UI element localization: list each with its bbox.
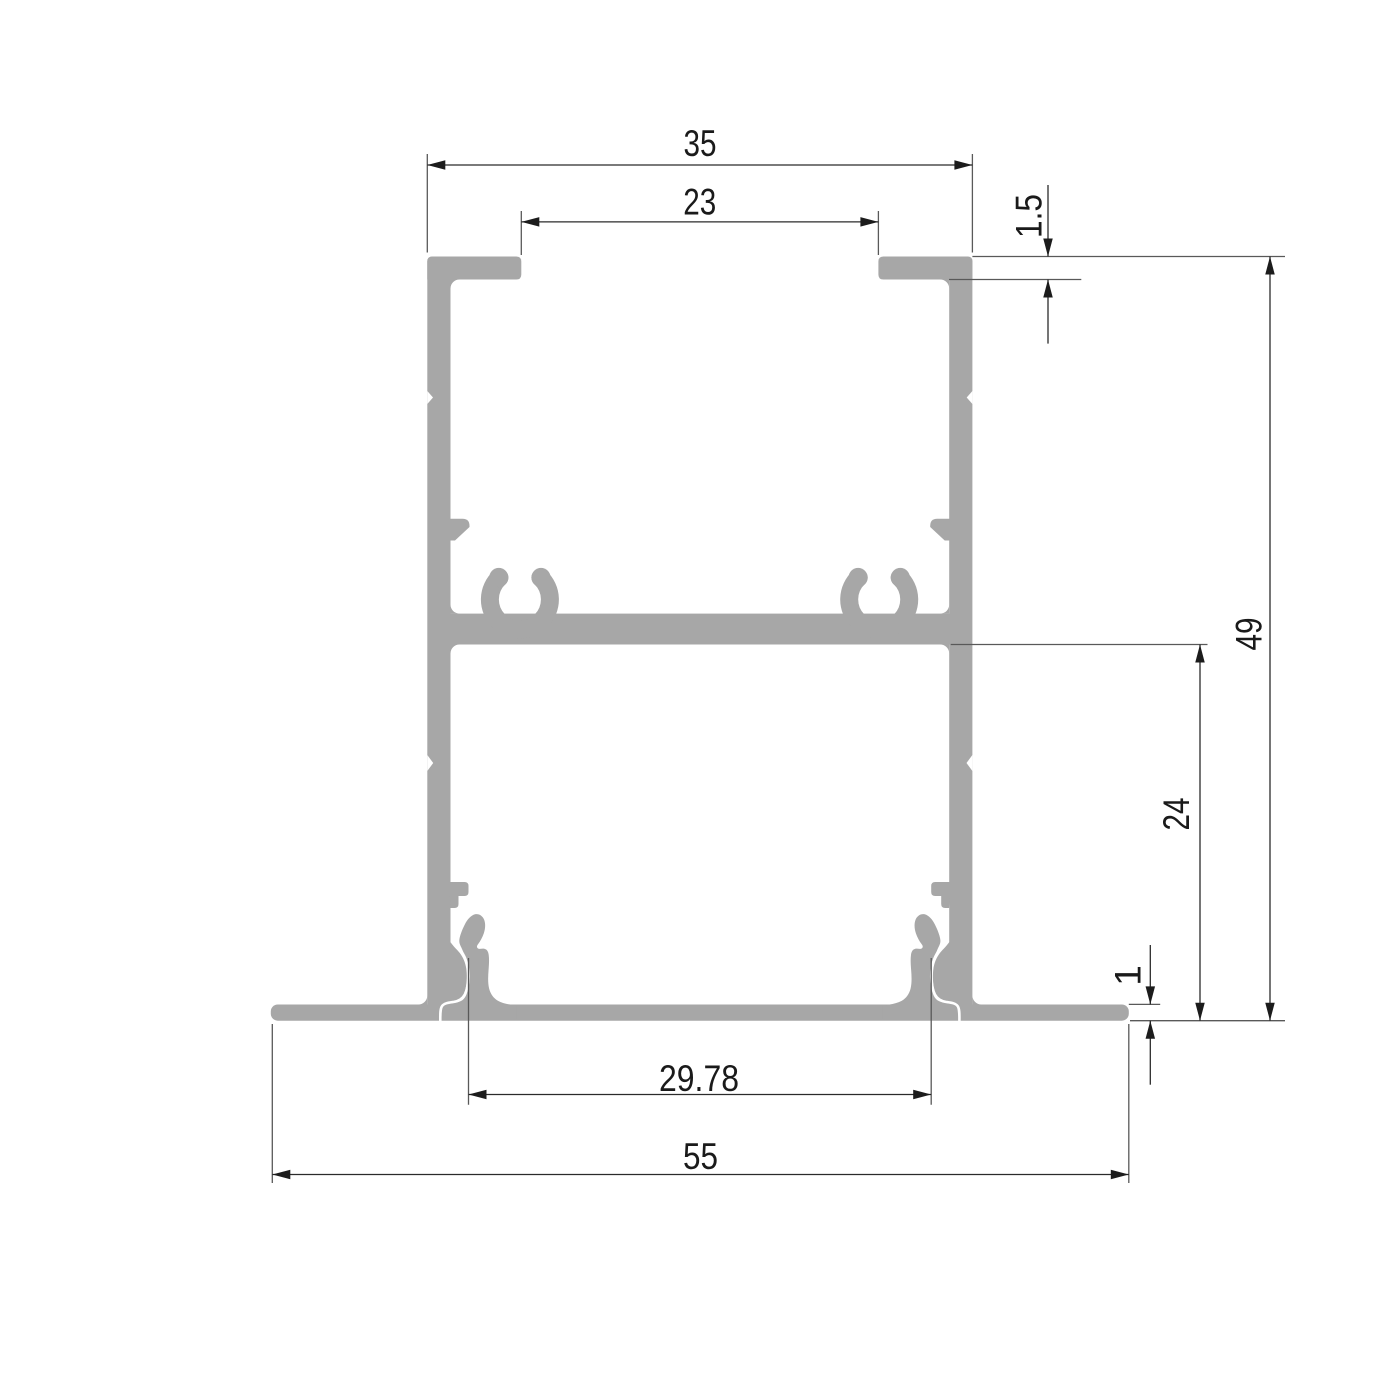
svg-text:24: 24 bbox=[1156, 798, 1197, 831]
svg-text:49: 49 bbox=[1229, 618, 1270, 651]
svg-text:1.5: 1.5 bbox=[1009, 194, 1050, 238]
svg-text:23: 23 bbox=[683, 182, 716, 223]
svg-text:55: 55 bbox=[683, 1136, 718, 1177]
svg-text:1: 1 bbox=[1108, 965, 1149, 986]
svg-text:35: 35 bbox=[684, 123, 717, 164]
svg-text:29.78: 29.78 bbox=[659, 1058, 739, 1099]
